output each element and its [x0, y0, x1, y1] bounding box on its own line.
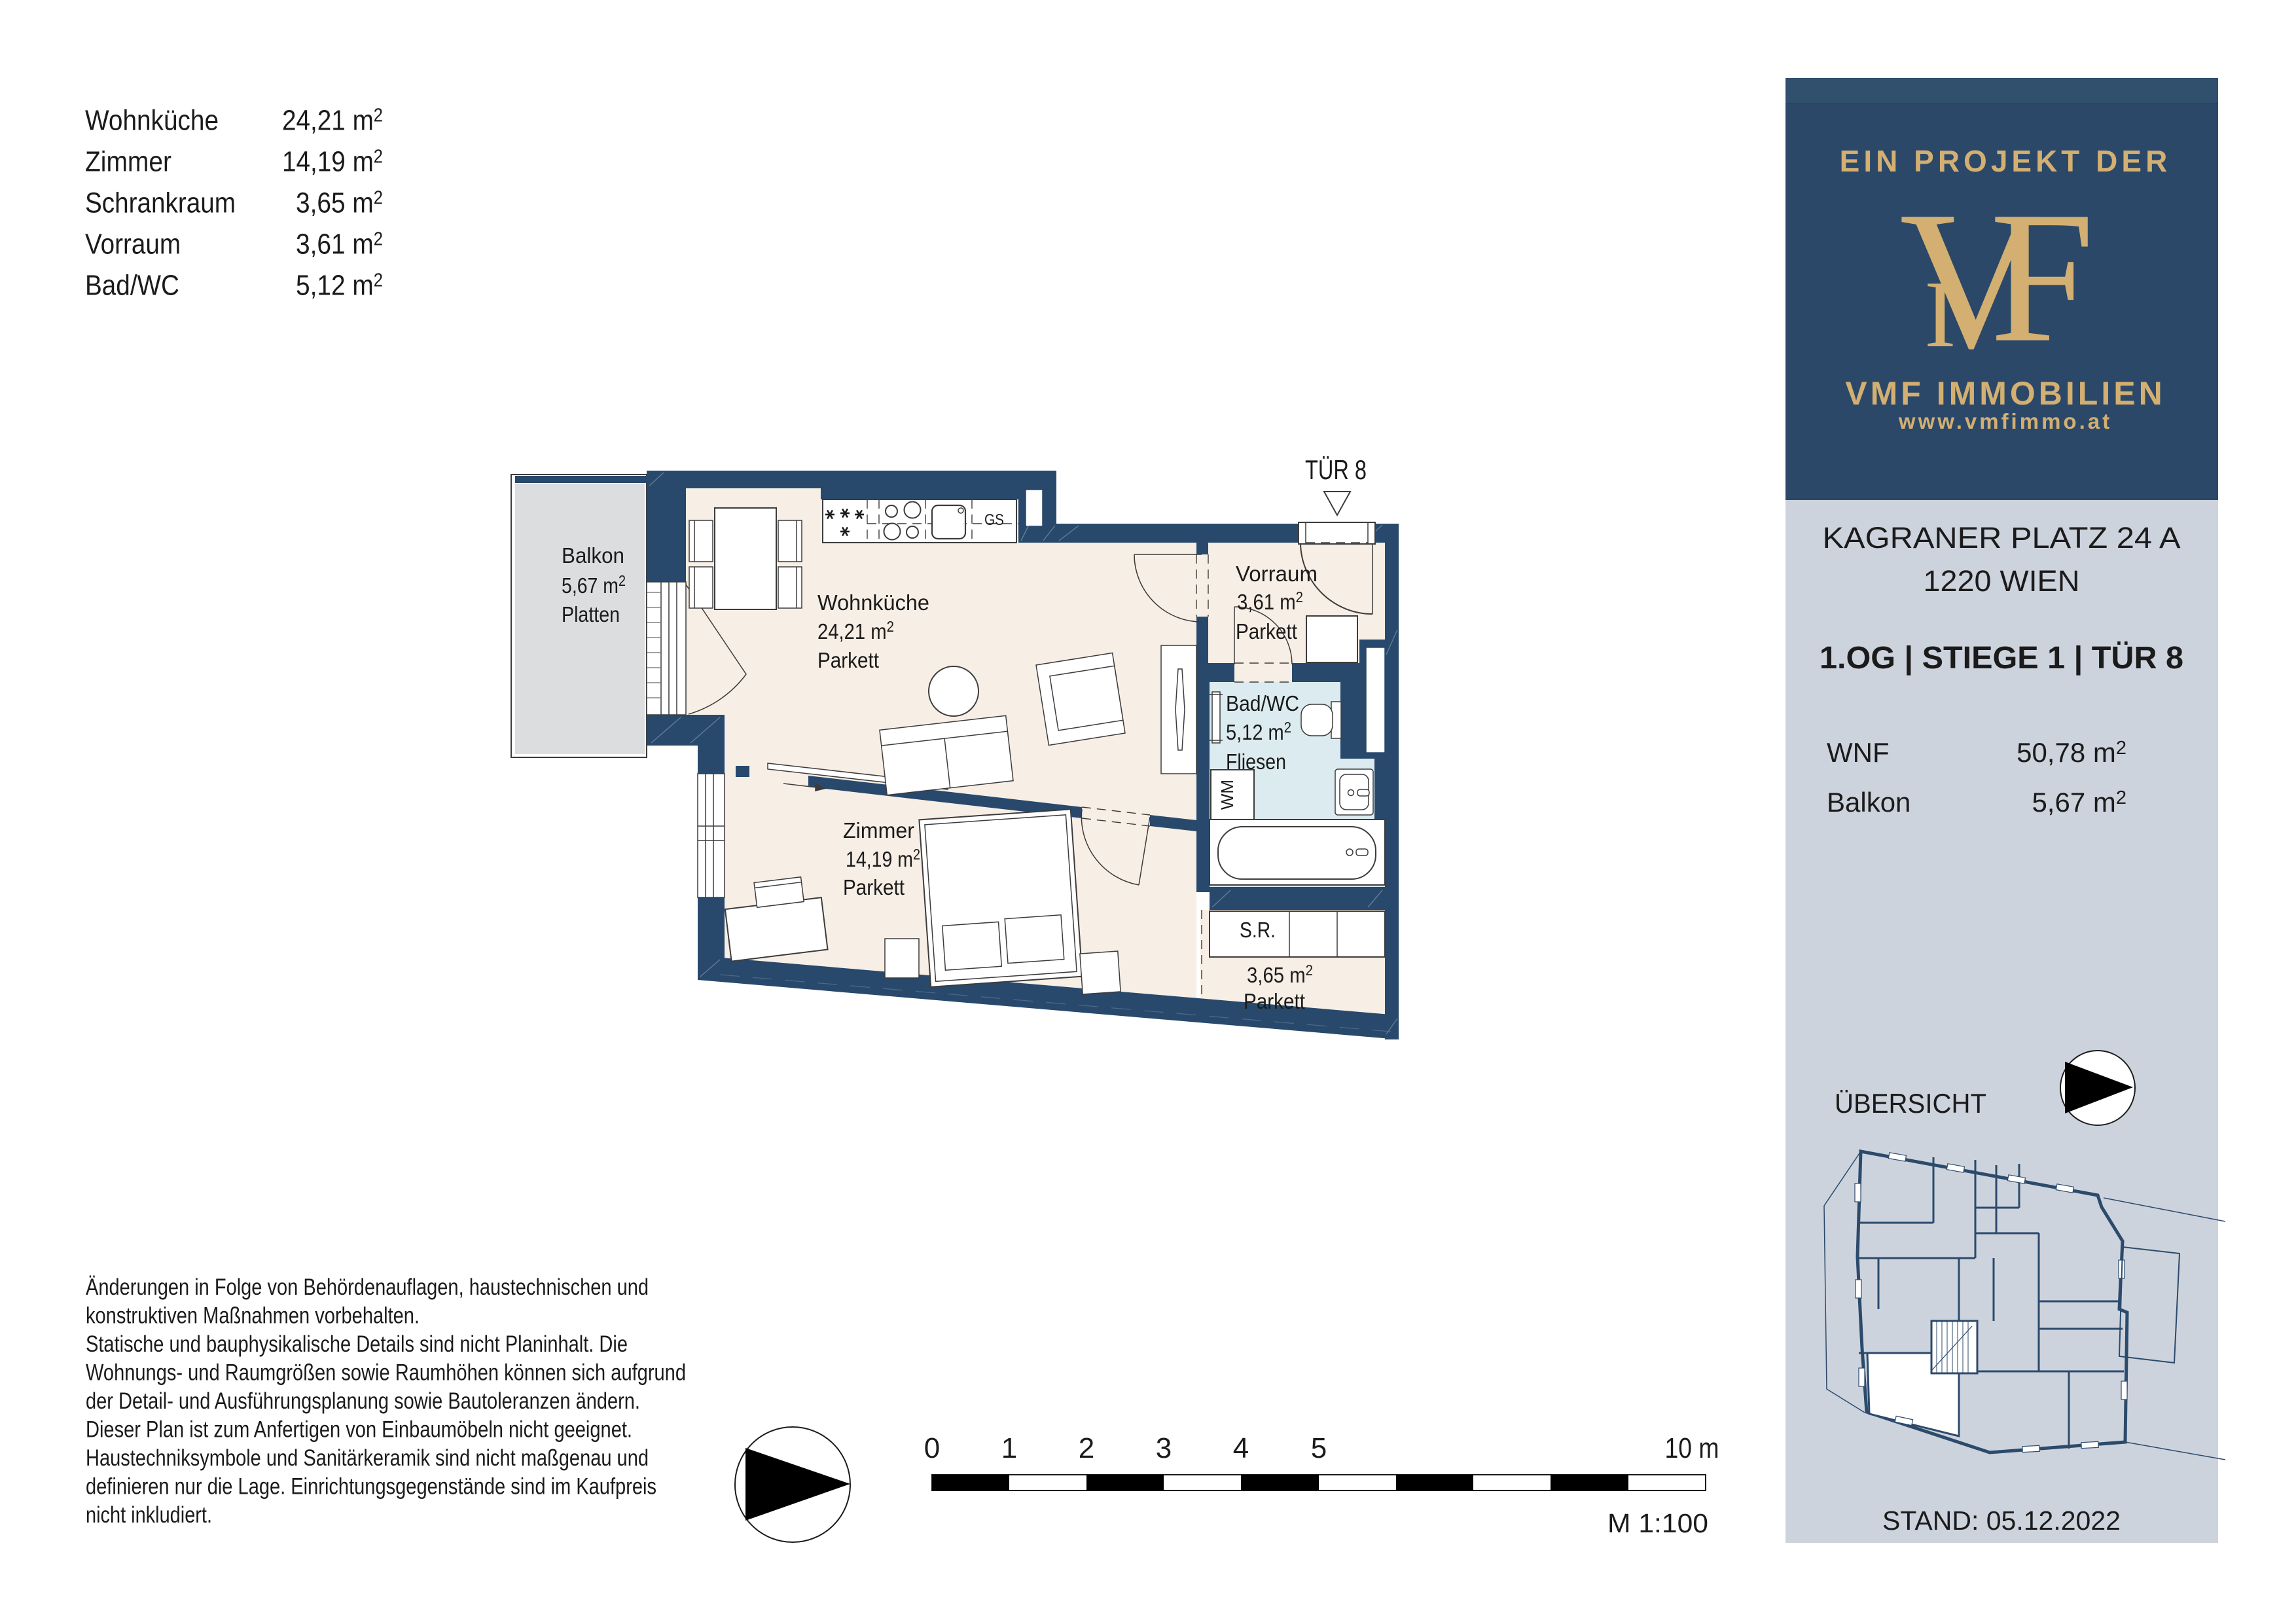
svg-text:Vorraum: Vorraum	[85, 228, 181, 261]
svg-text:Wohnungs- und Raumgrößen sowie: Wohnungs- und Raumgrößen sowie Raumhöhen…	[86, 1360, 686, 1386]
svg-text:Bad/WC: Bad/WC	[85, 270, 179, 302]
svg-text:S.R.: S.R.	[1240, 918, 1276, 942]
svg-text:4: 4	[1233, 1432, 1249, 1464]
svg-text:5: 5	[1311, 1432, 1327, 1464]
svg-text:50,78 m2: 50,78 m2	[2017, 737, 2126, 768]
svg-text:M 1:100: M 1:100	[1607, 1508, 1708, 1538]
svg-text:definieren nur die Lage. Einri: definieren nur die Lage. Einrichtungsgeg…	[86, 1474, 656, 1500]
svg-text:5,12 m2: 5,12 m2	[1226, 719, 1291, 744]
svg-text:WM: WM	[1217, 780, 1237, 810]
svg-text:F: F	[1990, 173, 2094, 382]
svg-text:Dieser Plan ist zum Anfertigen: Dieser Plan ist zum Anfertigen von Einba…	[86, 1417, 632, 1443]
svg-text:5,12 m2: 5,12 m2	[296, 270, 383, 302]
svg-text:Parkett: Parkett	[817, 648, 879, 672]
svg-text:14,19 m2: 14,19 m2	[846, 846, 920, 871]
svg-text:Änderungen in Folge von Behörd: Änderungen in Folge von Behördenauflagen…	[86, 1274, 649, 1300]
svg-text:Parkett: Parkett	[843, 875, 905, 899]
svg-text:WNF: WNF	[1827, 737, 1890, 768]
svg-text:Balkon: Balkon	[562, 543, 624, 568]
svg-text:ÜBERSICHT: ÜBERSICHT	[1835, 1088, 1986, 1119]
svg-text:www.vmfimmo.at: www.vmfimmo.at	[1898, 409, 2112, 433]
svg-text:24,21 m2: 24,21 m2	[817, 618, 894, 643]
svg-text:10 m: 10 m	[1665, 1432, 1719, 1464]
svg-text:STAND: 05.12.2022: STAND: 05.12.2022	[1882, 1506, 2121, 1536]
svg-text:1: 1	[1001, 1432, 1017, 1464]
svg-text:3,65 m2: 3,65 m2	[296, 187, 383, 219]
svg-text:Schrankraum: Schrankraum	[85, 187, 236, 219]
svg-text:TÜR 8: TÜR 8	[1305, 454, 1367, 485]
svg-text:der Detail- und Ausführungspla: der Detail- und Ausführungsplanung sowie…	[86, 1388, 640, 1414]
svg-text:KAGRANER PLATZ 24 A: KAGRANER PLATZ 24 A	[1823, 521, 2181, 554]
svg-text:Fliesen: Fliesen	[1226, 749, 1286, 774]
svg-text:GS: GS	[984, 511, 1004, 529]
svg-text:konstruktiven Maßnahmen vorbeh: konstruktiven Maßnahmen vorbehalten.	[86, 1303, 420, 1329]
svg-text:3,61 m2: 3,61 m2	[1237, 588, 1303, 614]
svg-text:Statische und bauphysikalische: Statische und bauphysikalische Details s…	[86, 1331, 628, 1357]
svg-text:Zimmer: Zimmer	[843, 818, 914, 842]
svg-text:3,61 m2: 3,61 m2	[296, 228, 383, 261]
svg-text:Parkett: Parkett	[1236, 619, 1297, 643]
svg-text:Bad/WC: Bad/WC	[1226, 691, 1299, 715]
svg-text:VMF IMMOBILIEN: VMF IMMOBILIEN	[1845, 375, 2165, 412]
svg-text:5,67 m2: 5,67 m2	[562, 572, 626, 598]
svg-text:Balkon: Balkon	[1827, 787, 1910, 818]
svg-text:1.OG | STIEGE 1 | TÜR 8: 1.OG | STIEGE 1 | TÜR 8	[1820, 641, 2183, 676]
svg-text:Haustechniksymbole und Sanitär: Haustechniksymbole und Sanitärkeramik si…	[86, 1445, 649, 1471]
svg-text:24,21 m2: 24,21 m2	[282, 105, 383, 137]
svg-text:Wohnküche: Wohnküche	[817, 590, 929, 615]
svg-text:Parkett: Parkett	[1244, 989, 1305, 1013]
svg-text:Zimmer: Zimmer	[85, 146, 171, 178]
svg-text:2: 2	[1079, 1432, 1094, 1464]
svg-text:Platten: Platten	[562, 602, 620, 626]
svg-text:nicht inkludiert.: nicht inkludiert.	[86, 1502, 212, 1528]
svg-text:5,67 m2: 5,67 m2	[2032, 787, 2126, 818]
svg-text:3,65 m2: 3,65 m2	[1247, 962, 1313, 987]
svg-text:3: 3	[1156, 1432, 1172, 1464]
svg-text:14,19 m2: 14,19 m2	[282, 146, 383, 178]
svg-text:1220 WIEN: 1220 WIEN	[1924, 564, 2080, 598]
svg-text:Wohnküche: Wohnküche	[85, 105, 219, 137]
svg-text:0: 0	[924, 1432, 940, 1464]
svg-text:Vorraum: Vorraum	[1236, 562, 1318, 586]
